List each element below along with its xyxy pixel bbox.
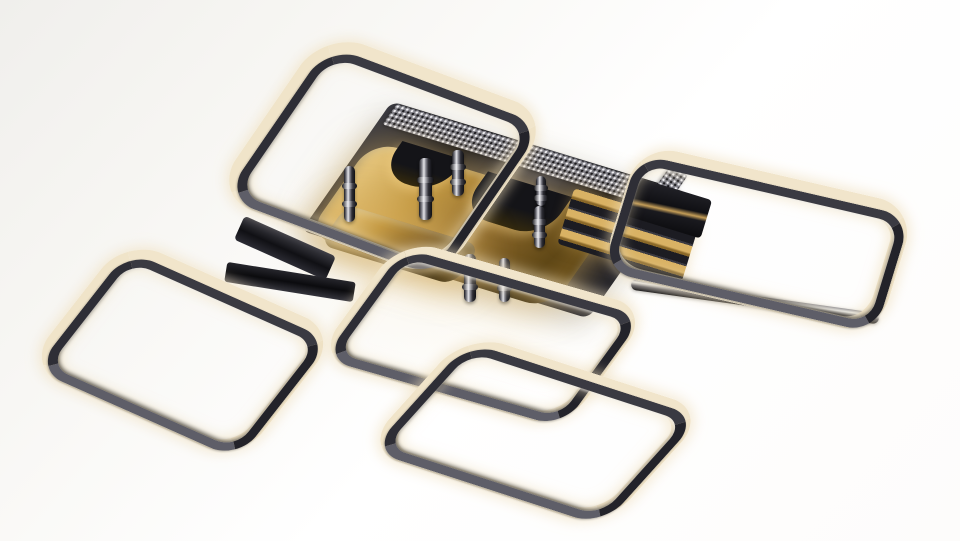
support-rod bbox=[536, 176, 546, 206]
ceiling-light-product-photo bbox=[0, 0, 960, 541]
support-rod bbox=[534, 206, 545, 248]
